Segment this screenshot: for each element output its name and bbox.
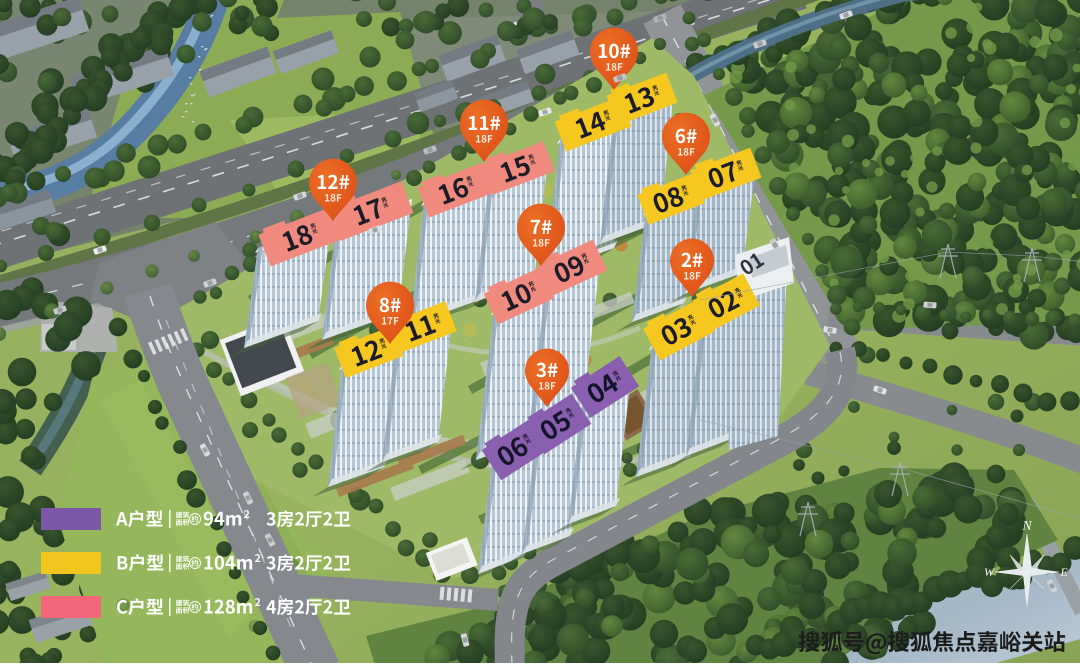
svg-text:N: N	[1021, 519, 1032, 534]
svg-text:E: E	[1059, 565, 1068, 579]
svg-text:W: W	[984, 565, 995, 579]
